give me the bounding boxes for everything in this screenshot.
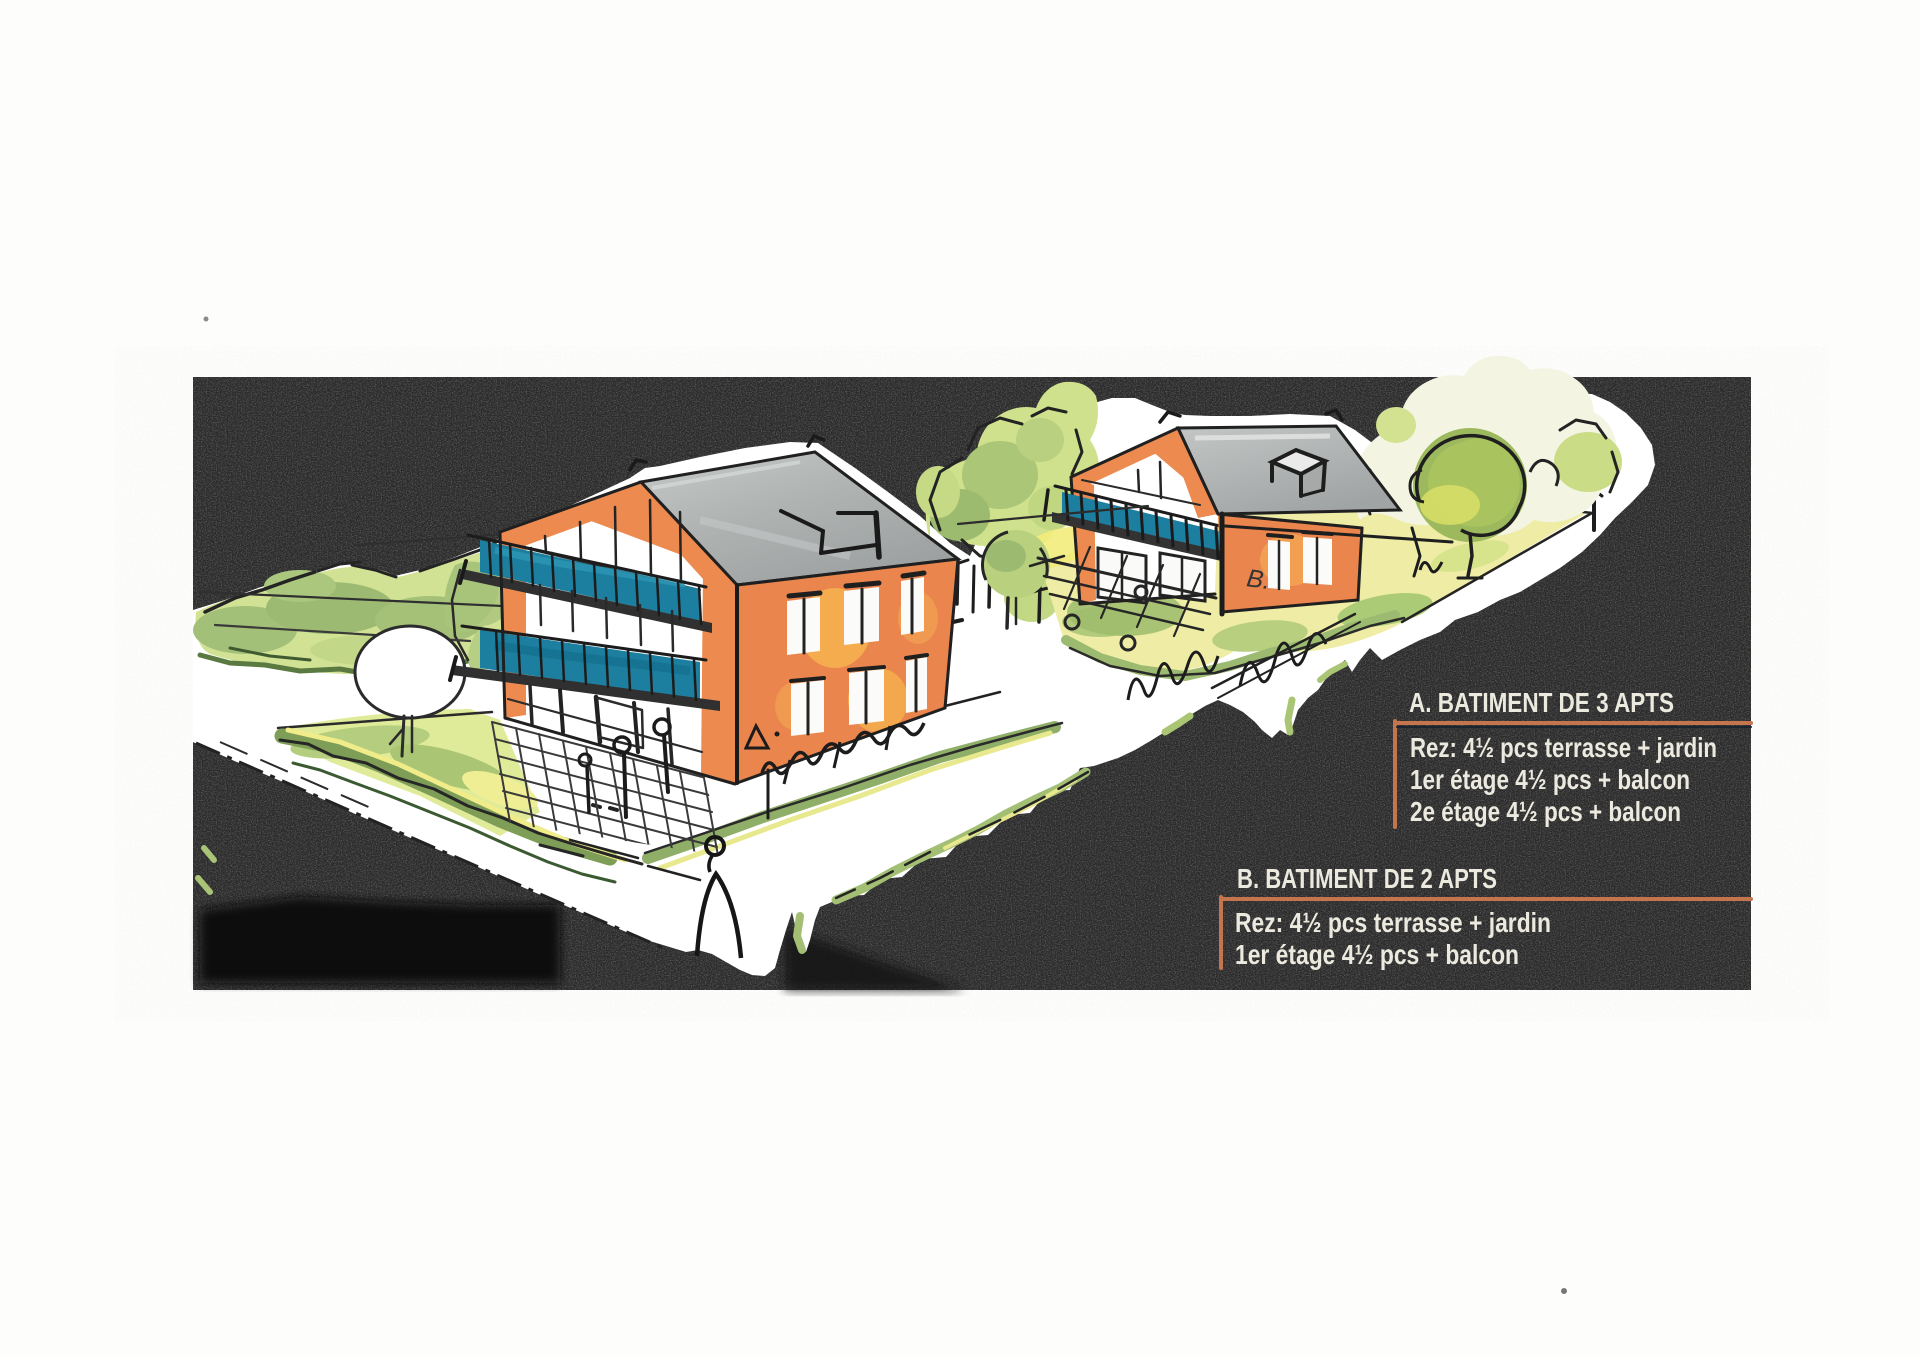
svg-text:B. BATIMENT DE 2 APTS: B. BATIMENT DE 2 APTS — [1237, 863, 1497, 894]
svg-text:1er étage 4½ pcs + balcon: 1er étage 4½ pcs + balcon — [1235, 939, 1519, 970]
svg-text:Rez: 4½ pcs terrasse + jardin: Rez: 4½ pcs terrasse + jardin — [1410, 732, 1717, 763]
svg-text:B.: B. — [1245, 564, 1272, 595]
svg-text:A. BATIMENT DE 3 APTS: A. BATIMENT DE 3 APTS — [1409, 687, 1674, 718]
svg-text:1er étage 4½ pcs + balcon: 1er étage 4½ pcs + balcon — [1410, 764, 1690, 795]
svg-text:2e étage 4½ pcs + balcon: 2e étage 4½ pcs + balcon — [1410, 796, 1681, 827]
svg-text:Rez: 4½ pcs terrasse + jardin: Rez: 4½ pcs terrasse + jardin — [1235, 907, 1551, 938]
